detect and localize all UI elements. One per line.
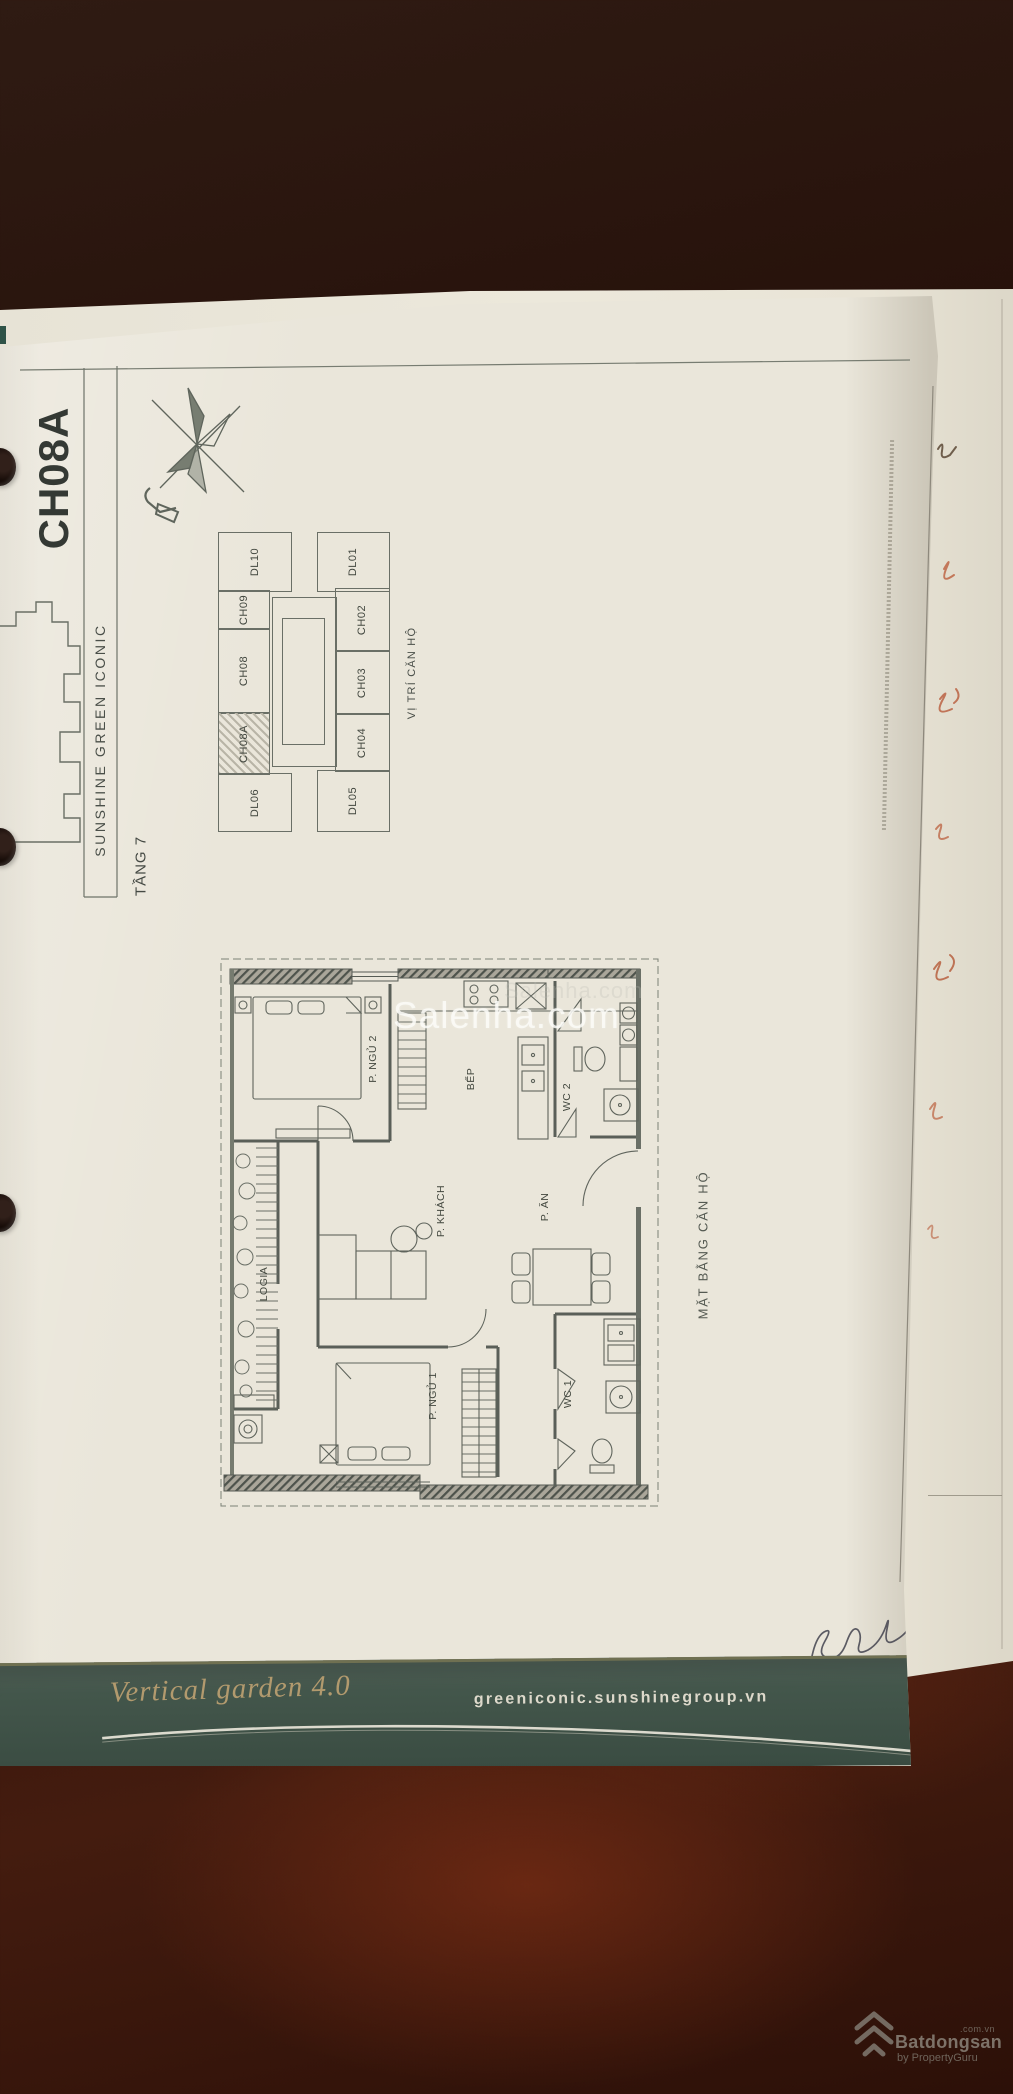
logia-detail xyxy=(233,1147,278,1405)
unit-code-title: CH08A xyxy=(30,407,78,550)
unit-box-ch08: CH08 xyxy=(218,628,270,714)
building-elevation-outline xyxy=(0,602,80,842)
plants xyxy=(233,1154,255,1397)
photo-of-floorplan-page: CH08A SUNSHINE GREEN ICONIC TẦNG 7 DL10 … xyxy=(0,0,1013,2094)
label-bedroom2: P. NGỦ 2 xyxy=(366,1035,379,1083)
unit-box-ch04: CH04 xyxy=(335,713,390,772)
label-kitchen: BẾP xyxy=(464,1068,477,1091)
label-bedroom1: P. NGỦ 1 xyxy=(426,1372,439,1420)
unit-box-ch03: CH03 xyxy=(335,650,390,715)
footer-band: Vertical garden 4.0 greeniconic.sunshine… xyxy=(0,1655,952,1773)
batdongsan-logo: .com.vn Batdongsan by PropertyGuru xyxy=(852,2000,1013,2072)
location-diagram-title: VỊ TRÍ CĂN HỘ xyxy=(406,627,418,719)
label-wc1: WC 1 xyxy=(562,1380,574,1408)
band-swoosh xyxy=(0,1655,952,1773)
label-wc2: WC 2 xyxy=(561,1083,573,1111)
label-dining: P. ĂN xyxy=(538,1193,551,1222)
under-sheet-border-line xyxy=(928,1495,1002,1496)
logo-byline: by PropertyGuru xyxy=(897,2052,978,2064)
unit-box-dl01: DL01 xyxy=(317,532,390,592)
bedroom2-furniture xyxy=(235,997,381,1138)
logo-name: Batdongsan xyxy=(895,2032,1002,2053)
unit-box-ch08a-highlighted: CH08A xyxy=(218,712,270,775)
bedroom1-furniture xyxy=(320,1363,496,1487)
label-logia: LOGIA xyxy=(258,1267,270,1302)
unit-box-dl05: DL05 xyxy=(317,770,390,832)
unit-box-ch02: CH02 xyxy=(335,588,390,652)
house-icon xyxy=(852,2006,896,2062)
unit-box-ch09: CH09 xyxy=(218,590,270,630)
floorplan-sheet: CH08A SUNSHINE GREEN ICONIC TẦNG 7 DL10 … xyxy=(0,296,940,1766)
project-name: SUNSHINE GREEN ICONIC xyxy=(92,623,108,857)
watermark: Salenha.com xyxy=(393,995,620,1037)
corridor-inner xyxy=(282,618,325,745)
floor-plan-title: MẶT BẰNG CĂN HỘ xyxy=(696,1171,711,1320)
green-cover-sliver xyxy=(0,326,6,344)
floor-label: TẦNG 7 xyxy=(133,836,150,896)
compass-icon xyxy=(145,388,244,522)
dining-furniture xyxy=(512,1249,610,1305)
label-living: P. KHÁCH xyxy=(434,1185,447,1237)
wc1-detail xyxy=(590,1319,640,1473)
footer-website: greeniconic.sunshinegroup.vn xyxy=(474,1688,769,1709)
living-furniture xyxy=(318,1223,432,1299)
unit-box-dl10: DL10 xyxy=(218,532,292,592)
unit-box-dl06: DL06 xyxy=(218,773,292,832)
